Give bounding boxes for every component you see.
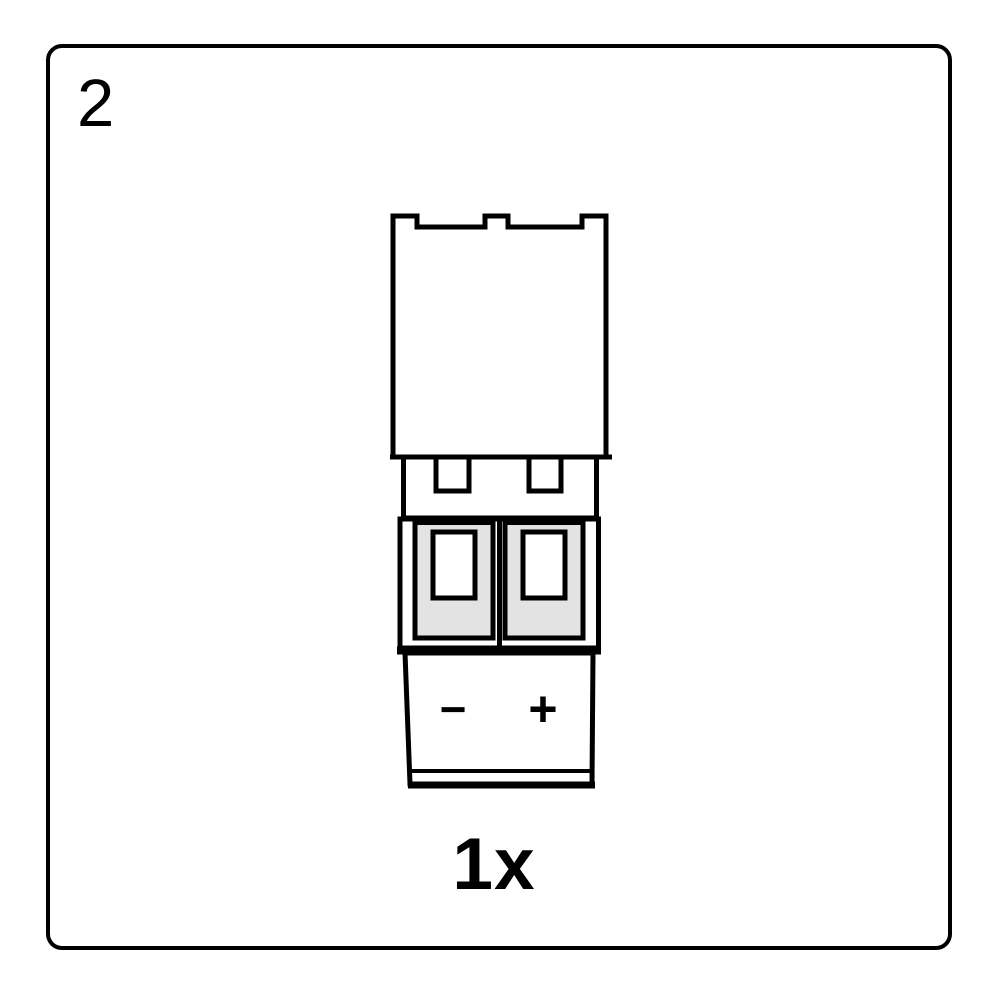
connector-housing-top: [393, 216, 606, 457]
instruction-step-panel: 2 − + 1x: [0, 0, 1000, 1000]
polarity-positive-label: +: [513, 679, 573, 739]
quantity-label: 1x: [0, 828, 1000, 901]
polarity-negative-label: −: [423, 679, 483, 739]
terminal-left-window: [433, 532, 475, 598]
terminal-right-window: [523, 532, 565, 598]
connector-collar: [404, 457, 597, 518]
